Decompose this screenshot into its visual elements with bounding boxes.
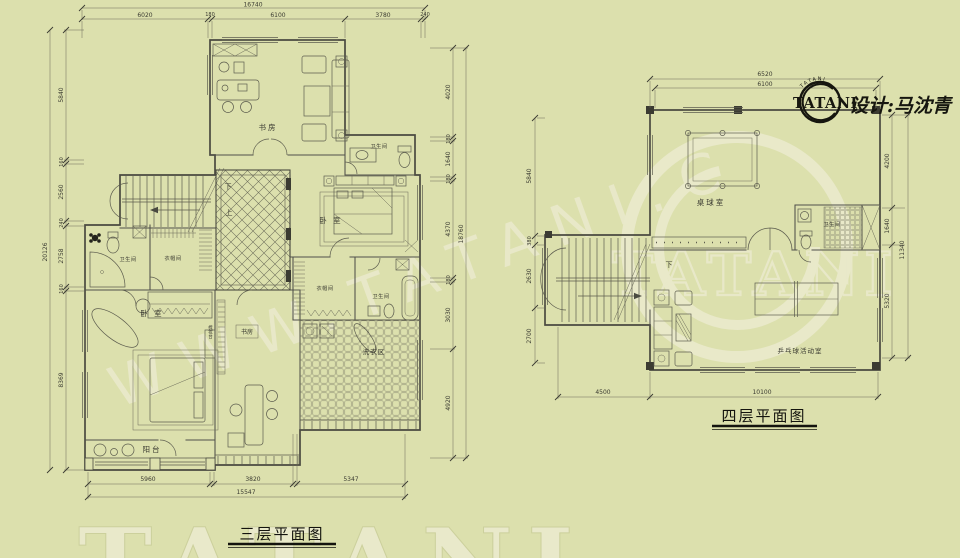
room-label-bath4: 卫生间	[823, 220, 840, 228]
room-label-balcony: 阳台	[143, 444, 162, 454]
dim4-top-1: 6100	[757, 81, 772, 88]
room-label-bath1: 卫生间	[370, 142, 387, 150]
drawing-canvas: WWW.TATANI.C TATANI TATANI	[0, 0, 960, 558]
dim-top-4: 240	[420, 12, 430, 18]
dim4-top-0: 6520	[757, 71, 772, 78]
room-label-study2: 书房	[241, 328, 253, 336]
plan4-title: 四层平面图	[721, 407, 806, 425]
plan3-title: 三层平面图	[239, 525, 324, 543]
dim-top-2: 6100	[270, 12, 285, 19]
dim-left-1: 160	[59, 157, 65, 167]
dim-left-3: 240	[59, 218, 65, 228]
logo-block: TATANI TATANI 设计:马沈青	[793, 76, 953, 122]
dim-top-0: 6020	[137, 12, 152, 19]
room-label-billiards: 桌球室	[697, 197, 726, 207]
dim4-left-2: 2630	[526, 268, 533, 283]
watermark-layer: WWW.TATANI.C TATANI TATANI	[78, 133, 897, 558]
room-label-study1: 书房	[259, 122, 278, 132]
dim-right-3: 180	[446, 174, 452, 184]
dim-top-3: 3780	[375, 12, 390, 19]
floorplan-sheet: WWW.TATANI.C TATANI TATANI	[0, 0, 960, 558]
room-label-bedroom1: 卧 室	[319, 215, 342, 225]
designer-credit: 设计:马沈青	[849, 95, 953, 117]
dim-bottom-0: 5960	[140, 476, 155, 483]
dim4-left-3: 2700	[526, 328, 533, 343]
room-label-bath3: 卫生间	[372, 292, 389, 300]
dim-left-0: 5840	[58, 87, 65, 102]
dim-left-4: 2758	[58, 248, 65, 263]
dim4-bottom-1: 10100	[752, 389, 771, 396]
dim-right-1: 180	[446, 134, 452, 144]
watermark-bottom-text: TATANI	[78, 506, 588, 558]
dim-total-bottom: 15547	[236, 489, 255, 496]
stair4-down-label: 下	[666, 261, 673, 269]
dim-total-right: 18760	[458, 224, 465, 243]
dim-right-5: 180	[446, 275, 452, 285]
dim-right-2: 1640	[445, 151, 452, 166]
dim-right-0: 4020	[445, 84, 452, 99]
room-label-dresser: 梳妆台	[208, 324, 213, 340]
dim-right-4: 4370	[445, 221, 452, 236]
study1-furniture-icon	[213, 44, 349, 155]
dim-bottom-2: 5347	[343, 476, 358, 483]
dim4-bottom-0: 4500	[595, 389, 610, 396]
stairs-icon	[110, 168, 224, 232]
room-label-bath2: 卫生间	[119, 255, 136, 263]
room-label-laundry: 洗衣区	[363, 347, 386, 356]
dim4-right-1: 1640	[884, 218, 891, 233]
dim-total-left: 20126	[42, 242, 49, 261]
laundry-tiles-icon	[300, 320, 420, 420]
dim4-right-0: 4200	[884, 153, 891, 168]
dim-top-1: 180	[205, 12, 215, 18]
dim-left-5: 160	[59, 284, 65, 294]
dim4-left-0: 5840	[526, 168, 533, 183]
bath1-fixtures-icon	[345, 146, 411, 174]
dim-left-6: 8369	[58, 372, 65, 387]
room-label-closet2: 衣帽间	[316, 284, 333, 292]
dim-left-2: 2560	[58, 184, 65, 199]
stair-up-label: 上	[226, 208, 233, 217]
stair-down-label: 下	[225, 183, 232, 191]
dim-right-7: 4920	[445, 395, 452, 410]
dim4-right-2: 5320	[884, 293, 891, 308]
plan3-title-block: 三层平面图	[228, 525, 336, 548]
room-label-pingpong: 乒乓球活动室	[778, 346, 823, 355]
dim-total-top: 16740	[243, 2, 262, 9]
dim4-left-1: 380	[527, 236, 533, 246]
dim4-total-right: 11340	[899, 240, 906, 259]
room-label-bedroom2: 卧 室	[140, 308, 163, 318]
dim-bottom-1: 3820	[245, 476, 260, 483]
dim-right-6: 3030	[445, 307, 452, 322]
plan4-title-block: 四层平面图	[712, 407, 817, 430]
plant-icon	[89, 233, 101, 243]
room-label-closet1: 衣帽间	[164, 254, 181, 262]
